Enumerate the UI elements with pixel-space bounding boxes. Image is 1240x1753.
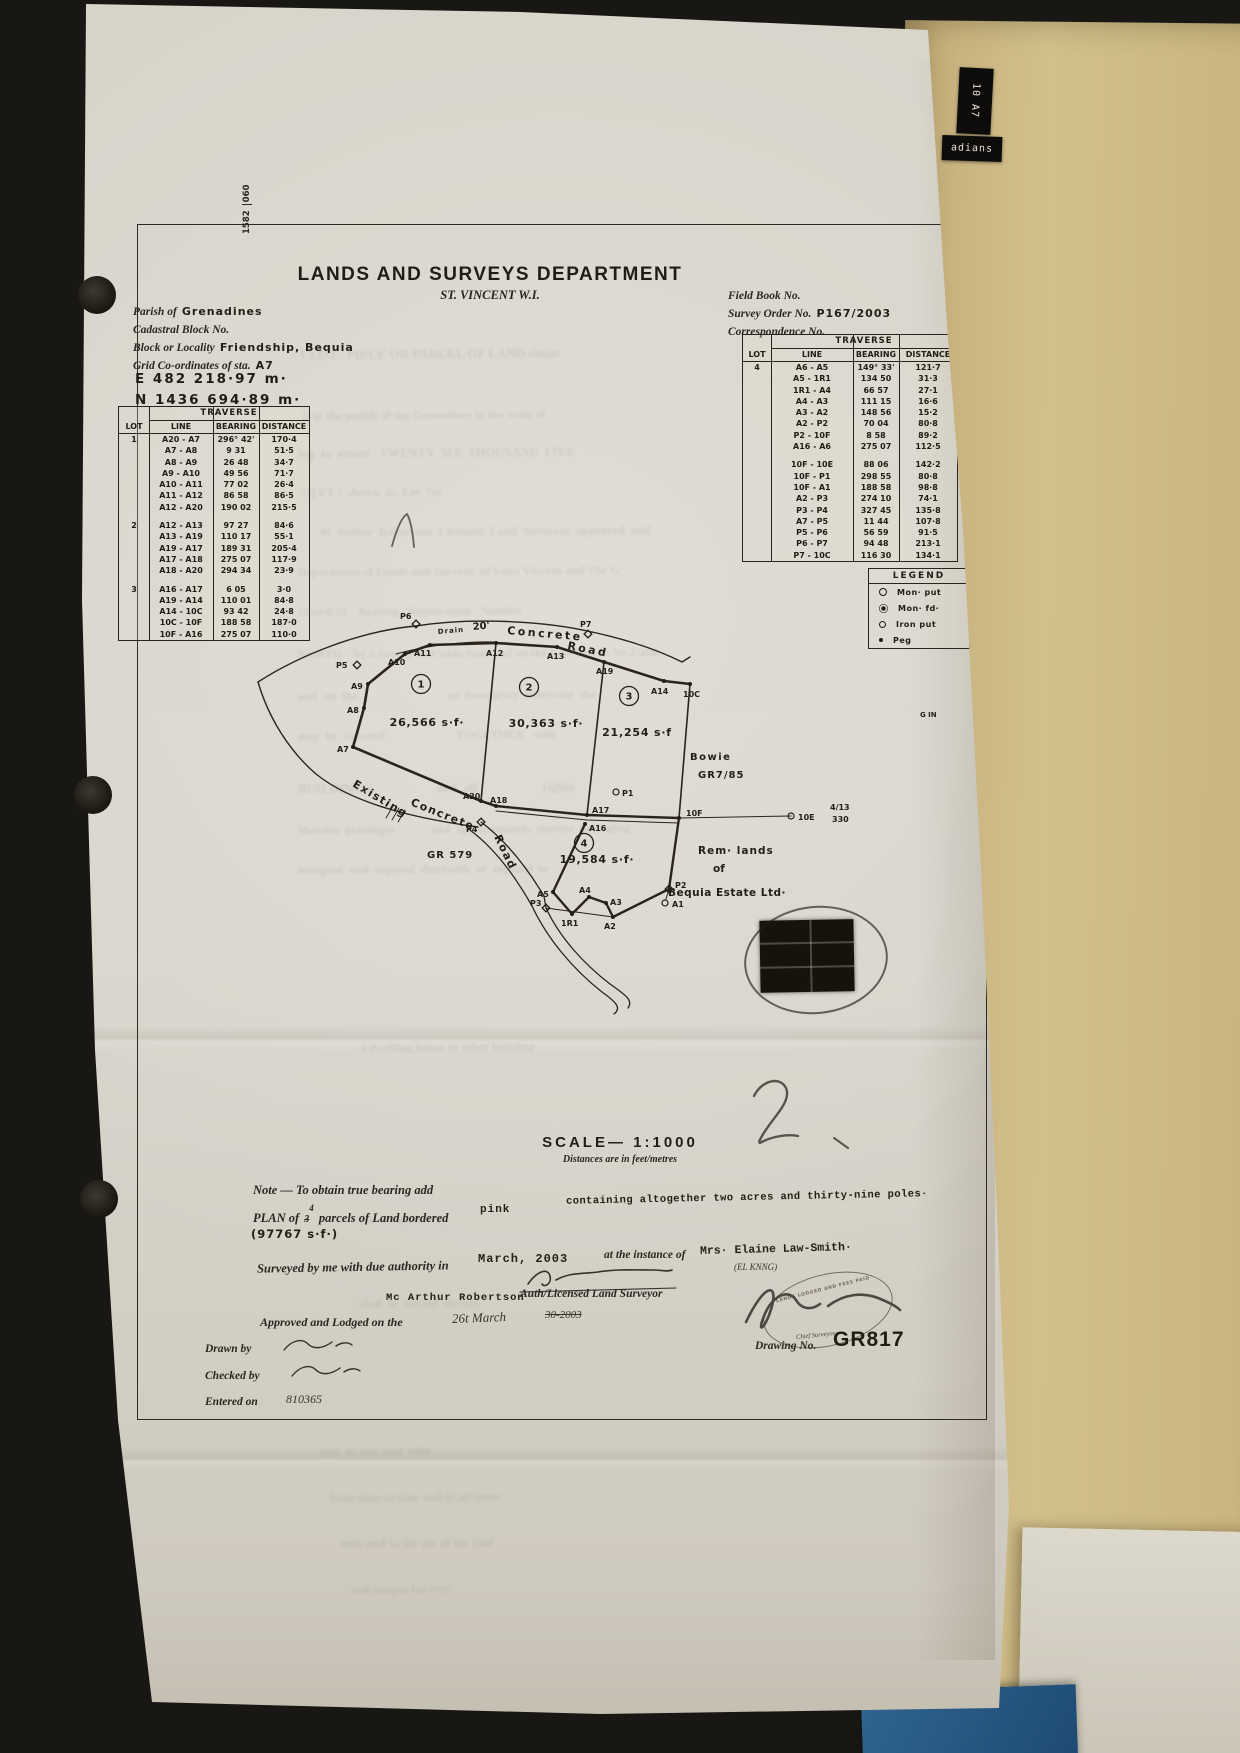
punch-hole	[74, 776, 112, 814]
drawing-no-value: GR817	[833, 1328, 905, 1352]
survey-date: March, 2003	[478, 1252, 568, 1266]
entered-on-label: Entered on	[205, 1396, 258, 1408]
plan-suffix: parcels of Land bordered	[319, 1211, 449, 1225]
plan-description-line: PLAN of 34 parcels of Land bordered	[253, 1207, 448, 1226]
entered-on-value: 810365	[286, 1392, 322, 1407]
parcel-count-corrected: 4	[309, 1203, 314, 1213]
punch-hole	[78, 276, 116, 314]
scale-title: SCALE— 1:1000	[500, 1134, 740, 1151]
surveyor-title: Auth/Licensed Land Surveyor	[520, 1288, 662, 1300]
surveyor-signature	[528, 1270, 672, 1286]
parcel-count-old: 3	[304, 1214, 309, 1225]
pencil-dash	[834, 1138, 848, 1148]
folder-tab-side: adians	[942, 135, 1003, 162]
punch-hole	[80, 1180, 118, 1218]
surveyor-name: Mc Arthur Robertson	[386, 1292, 525, 1304]
approved-date-struck: 30-2003	[545, 1309, 582, 1321]
drawn-by-label: Drawn by	[205, 1343, 251, 1355]
folder-tab-top: 10 A7	[956, 67, 993, 135]
checked-by-signature	[292, 1367, 360, 1376]
drawn-by-signature	[284, 1341, 352, 1350]
bearing-note: Note — To obtain true bearing add	[253, 1183, 433, 1198]
border-color-word: pink	[480, 1204, 510, 1216]
photo-of-survey-plan: 10 A7 adians T LOT PIECE OR PARCEL OF LA…	[0, 0, 1240, 1753]
instance-label: at the instance of	[604, 1249, 685, 1261]
approved-date-handwritten: 26t March	[452, 1309, 507, 1327]
approved-label: Approved and Lodged on the	[260, 1315, 403, 1330]
pencil-numeral-2	[754, 1081, 798, 1143]
scale-units-note: Distances are in feet/metres	[500, 1154, 740, 1165]
checked-by-label: Checked by	[205, 1370, 260, 1382]
drawing-no-label: Drawing No.	[755, 1340, 816, 1352]
total-area: (97767 s·f·)	[251, 1227, 338, 1241]
plan-prefix: PLAN of	[253, 1211, 299, 1225]
client-handwritten-note: (EL KNNG)	[734, 1262, 777, 1272]
